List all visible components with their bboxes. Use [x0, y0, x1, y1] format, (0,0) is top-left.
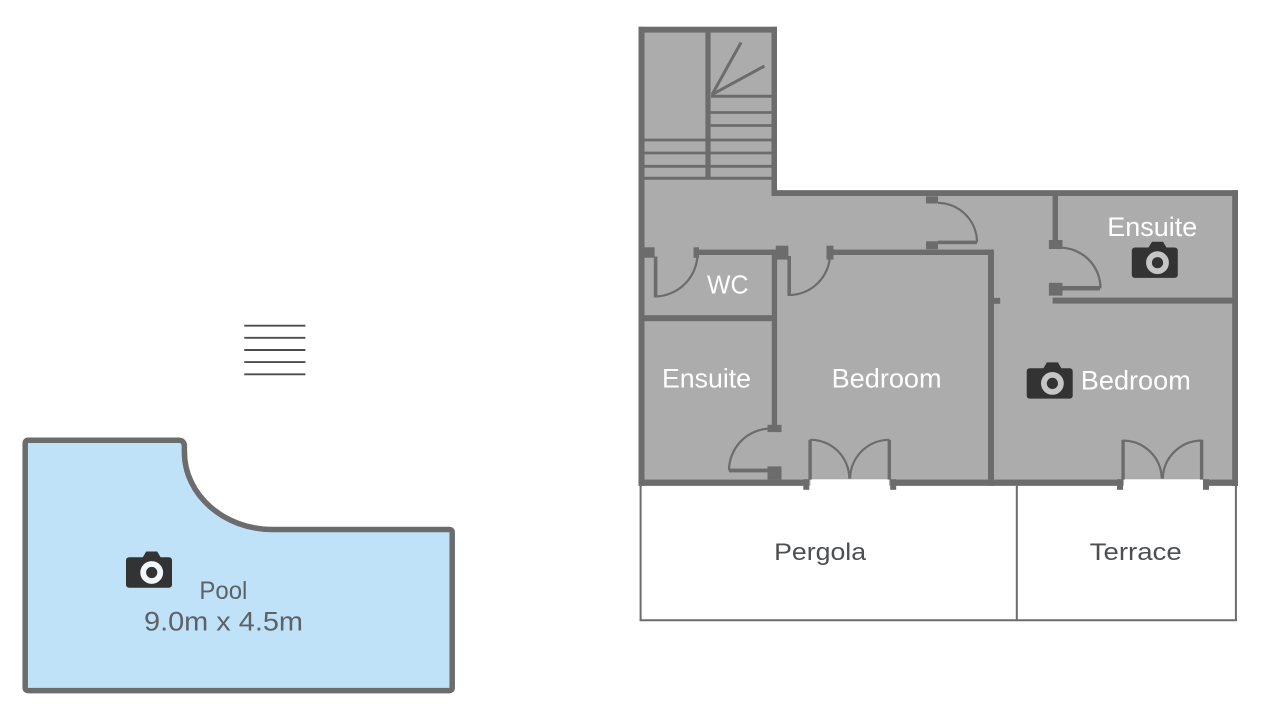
svg-text:Pergola: Pergola	[774, 539, 867, 566]
svg-text:WC: WC	[707, 269, 749, 299]
svg-text:Terrace: Terrace	[1090, 539, 1182, 566]
svg-text:Ensuite: Ensuite	[1107, 212, 1197, 242]
svg-text:Ensuite: Ensuite	[662, 364, 751, 394]
svg-text:Bedroom: Bedroom	[832, 364, 942, 394]
svg-text:Bedroom: Bedroom	[1081, 365, 1191, 395]
svg-text:9.0m x 4.5m: 9.0m x 4.5m	[144, 606, 303, 636]
svg-text:Pool: Pool	[199, 577, 247, 605]
